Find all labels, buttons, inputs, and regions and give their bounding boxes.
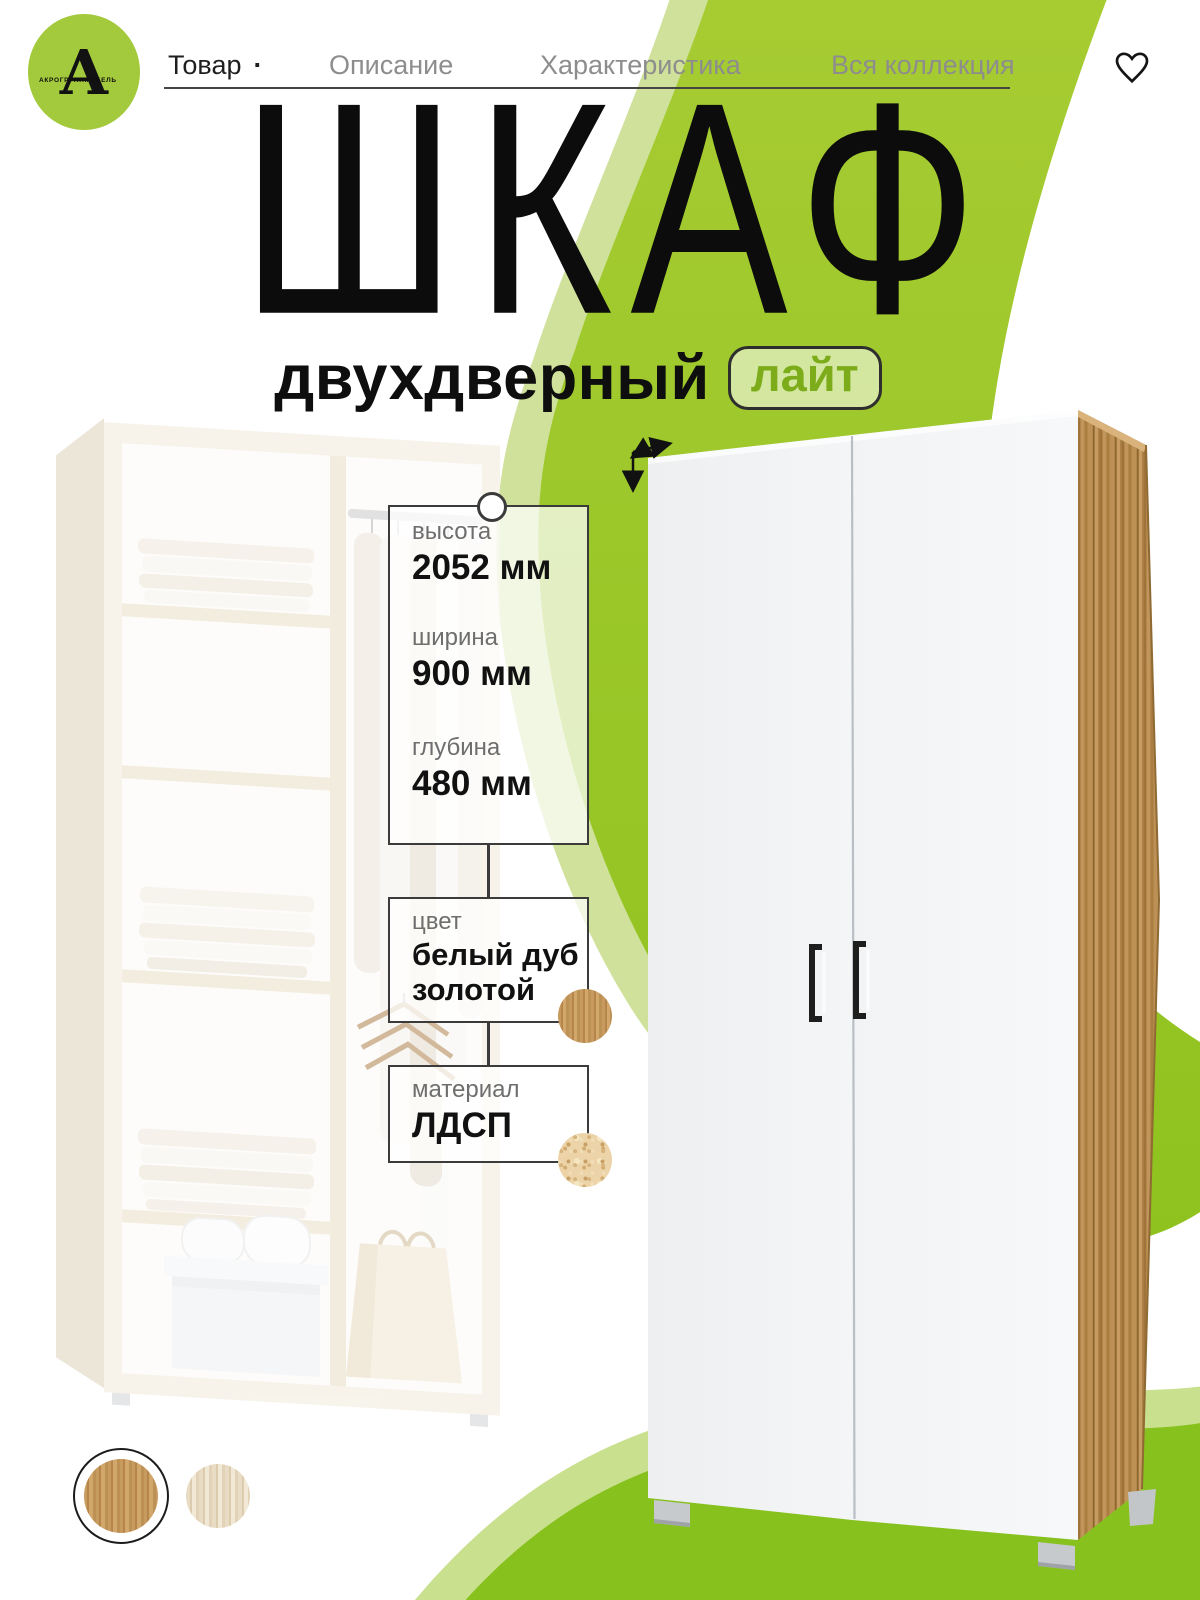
color-label: цвет — [412, 907, 587, 937]
color-swatch-oak-gold — [558, 989, 612, 1043]
material-value: ЛДСП — [412, 1105, 587, 1147]
product-subtitle-row: двухдверный лайт — [128, 342, 1028, 414]
material-swatch-chipboard — [558, 1133, 612, 1187]
color-option-oak-gold-selected[interactable] — [73, 1448, 169, 1544]
paper-bag — [346, 1229, 462, 1383]
wood-side-panel — [1078, 410, 1159, 1540]
brand-name: АКРОГРУППМЕБЕЛЬ — [39, 77, 133, 84]
brand-monogram: А — [28, 36, 140, 109]
brand-logo[interactable]: А АКРОГРУППМЕБЕЛЬ — [28, 14, 140, 130]
wishlist-button[interactable] — [1112, 48, 1152, 88]
color-option-oak-sonoma[interactable] — [186, 1464, 250, 1528]
connector-line — [487, 1023, 490, 1065]
height-value: 2052 мм — [412, 547, 587, 589]
oak-gold-swatch — [84, 1459, 158, 1533]
variant-badge: лайт — [728, 346, 882, 409]
material-panel: материал ЛДСП — [388, 1065, 589, 1163]
product-title: ШКАФ — [150, 58, 1068, 360]
width-value: 900 мм — [412, 653, 587, 695]
connector-line — [487, 845, 490, 897]
depth-value: 480 мм — [412, 763, 587, 805]
color-panel: цвет белый дуб золотой — [388, 897, 589, 1023]
color-value-line1: белый дуб — [412, 937, 587, 972]
heart-icon — [1114, 50, 1150, 84]
wardrobe-product-image — [648, 410, 1159, 1570]
product-subtitle: двухдверный — [274, 342, 710, 414]
width-label: ширина — [412, 623, 587, 653]
pin-marker — [477, 492, 507, 522]
height-label: высота — [412, 517, 587, 547]
depth-label: глубина — [412, 733, 587, 763]
dimensions-panel: высота 2052 мм ширина 900 мм глубина 480… — [388, 505, 589, 845]
material-label: материал — [412, 1075, 587, 1105]
shoebox-and-sneakers — [164, 1210, 328, 1378]
